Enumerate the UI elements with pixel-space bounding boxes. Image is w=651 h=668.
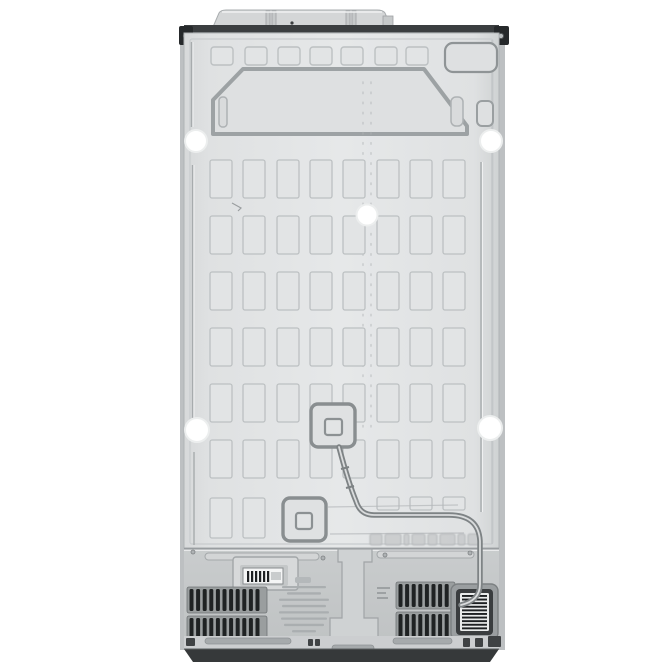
embossed-cell	[210, 160, 232, 198]
embossed-cell	[210, 498, 232, 538]
vent-slot	[242, 589, 246, 611]
upper-access-panel	[311, 404, 355, 447]
fineprint-line	[292, 630, 316, 632]
embossed-cell	[277, 160, 299, 198]
embossed-cell	[443, 440, 465, 478]
barcode-bar	[462, 617, 487, 619]
embossed-glyph	[370, 534, 382, 545]
serial-plate	[233, 557, 298, 590]
vent-slot	[203, 589, 207, 611]
recess-slot-right	[451, 97, 463, 126]
embossed-cell	[310, 272, 332, 310]
embossed-cell	[277, 328, 299, 366]
embossed-cell	[343, 160, 365, 198]
embossed-cell	[443, 272, 465, 310]
embossed-glyph	[404, 534, 409, 545]
molding-seam-rib	[272, 11, 276, 26]
embossed-cell	[377, 440, 399, 478]
embossed-marking-illegible	[370, 534, 479, 545]
strip-fastener	[488, 636, 501, 647]
embossed-cell	[377, 160, 399, 198]
strip-fastener	[475, 638, 483, 647]
lower-access-panel	[283, 498, 326, 541]
embossed-cell	[277, 216, 299, 254]
vent-slot	[236, 589, 240, 611]
top-emboss-square	[278, 47, 300, 65]
vent-slot	[438, 584, 442, 607]
embossed-cell	[377, 216, 399, 254]
vent-slot	[412, 584, 416, 607]
mounting-hole	[480, 130, 502, 152]
serial-digits	[271, 572, 281, 580]
embossed-cell	[443, 384, 465, 422]
barcode-bar	[462, 609, 487, 611]
compartment-screw	[383, 553, 387, 557]
vent-slot	[229, 589, 233, 611]
recess-slot-left	[219, 97, 227, 127]
molding-screw	[290, 21, 293, 24]
strip-fastener	[463, 638, 470, 647]
embossed-cell	[243, 328, 265, 366]
embossed-cell	[277, 440, 299, 478]
compartment-screw	[468, 551, 472, 555]
barcode-bar	[251, 571, 253, 582]
fineprint-line	[282, 586, 326, 588]
embossed-cell	[410, 328, 432, 366]
vent-slot	[196, 589, 200, 611]
barcode-bar	[462, 613, 487, 615]
molding-seam-rib	[352, 11, 356, 26]
barcode-bar	[462, 627, 487, 629]
embossed-cell	[210, 440, 232, 478]
top-embossed-recess	[213, 69, 467, 134]
molding-seam-rib	[266, 11, 270, 26]
molding-seam-rib	[346, 11, 350, 26]
mounting-hole	[185, 130, 207, 152]
compartment-rail-right	[377, 551, 474, 558]
top-emboss-square	[341, 47, 363, 65]
fineprint-line	[287, 592, 321, 594]
embossed-cell	[277, 384, 299, 422]
embossed-cell	[443, 160, 465, 198]
top-emboss-square	[375, 47, 397, 65]
embossed-cell	[310, 160, 332, 198]
barcode-bar	[247, 571, 249, 582]
machine-compartment	[184, 548, 499, 650]
refrigerator-back-illustration	[0, 0, 651, 668]
vent-slot	[425, 584, 429, 607]
embossed-cell	[443, 216, 465, 254]
embossed-cell	[377, 384, 399, 422]
vent-slot	[256, 589, 260, 611]
barcode-bar	[462, 624, 487, 626]
embossed-cell	[210, 328, 232, 366]
embossed-cell	[243, 384, 265, 422]
top-edge-strip	[184, 25, 499, 33]
embossed-cell	[210, 384, 232, 422]
vent-slot	[418, 584, 422, 607]
embossed-glyph	[428, 534, 437, 545]
top-emboss-square	[406, 47, 428, 65]
embossed-glyph	[458, 534, 465, 545]
embossed-cell	[343, 328, 365, 366]
fineprint-line	[279, 599, 329, 601]
strip-fastener	[186, 638, 195, 646]
right-small-embossed-square	[477, 101, 493, 126]
embossed-cell	[343, 272, 365, 310]
embossed-cell	[410, 160, 432, 198]
embossed-cell	[210, 272, 232, 310]
embossed-cell	[243, 160, 265, 198]
barcode-bar	[267, 571, 269, 582]
mounting-hole	[478, 416, 502, 440]
energy-barcode-label	[451, 584, 498, 640]
vent-slot	[223, 589, 227, 611]
upper-access-inner-square	[325, 419, 342, 435]
compartment-screw	[191, 550, 195, 554]
barcode-bar	[259, 571, 261, 582]
compartment-screw	[321, 556, 325, 560]
top-right-embossed-rect	[445, 43, 497, 72]
strip-slot	[393, 638, 452, 644]
vent-slot	[190, 589, 194, 611]
barcode-bar	[255, 571, 257, 582]
top-emboss-square	[310, 47, 332, 65]
embossed-cell	[243, 272, 265, 310]
fineprint-line	[279, 611, 329, 613]
embossed-cell	[410, 216, 432, 254]
embossed-cell	[377, 497, 399, 510]
embossed-cell	[443, 497, 465, 510]
embossed-cell	[310, 216, 332, 254]
embossed-cell	[310, 328, 332, 366]
top-molding	[213, 10, 393, 27]
embossed-cell	[410, 440, 432, 478]
embossed-cell	[410, 384, 432, 422]
fineprint-line	[282, 605, 326, 607]
lower-access-inner-square	[296, 513, 312, 529]
small-print-line	[377, 587, 390, 589]
fineprint-line	[281, 618, 327, 620]
mounting-hole	[185, 418, 209, 442]
product-photo-refrigerator-back	[0, 0, 651, 668]
embossed-cell	[277, 272, 299, 310]
embossed-cell	[410, 497, 432, 510]
vent-slot	[249, 589, 253, 611]
embossed-cell	[243, 498, 265, 538]
base-plinth	[184, 649, 499, 662]
embossed-cell	[377, 328, 399, 366]
vent-slot	[432, 584, 436, 607]
embossed-cell	[410, 272, 432, 310]
top-emboss-square	[211, 47, 233, 65]
barcode-bar	[263, 571, 265, 582]
embossed-cell	[210, 216, 232, 254]
fineprint-line	[284, 624, 324, 626]
strip-slot	[205, 638, 291, 644]
vent-slot	[445, 584, 449, 607]
small-print-line	[377, 592, 386, 594]
vent-grille-right	[396, 582, 455, 642]
strip-fastener	[315, 639, 320, 646]
barcode-bar	[462, 620, 487, 622]
small-print-line	[377, 597, 388, 599]
mounting-hole	[357, 205, 378, 226]
vent-slot	[216, 589, 220, 611]
embossed-cell	[377, 272, 399, 310]
embossed-glyph	[412, 534, 425, 545]
top-emboss-square	[245, 47, 267, 65]
embossed-glyph	[440, 534, 455, 545]
vent-slot	[399, 584, 403, 607]
vent-slot	[405, 584, 409, 607]
rating-label-emblem	[295, 577, 311, 583]
embossed-cell	[243, 216, 265, 254]
strip-fastener	[308, 639, 313, 646]
embossed-cell	[243, 440, 265, 478]
embossed-glyph	[385, 534, 401, 545]
embossed-cell	[443, 328, 465, 366]
vent-slot	[209, 589, 213, 611]
